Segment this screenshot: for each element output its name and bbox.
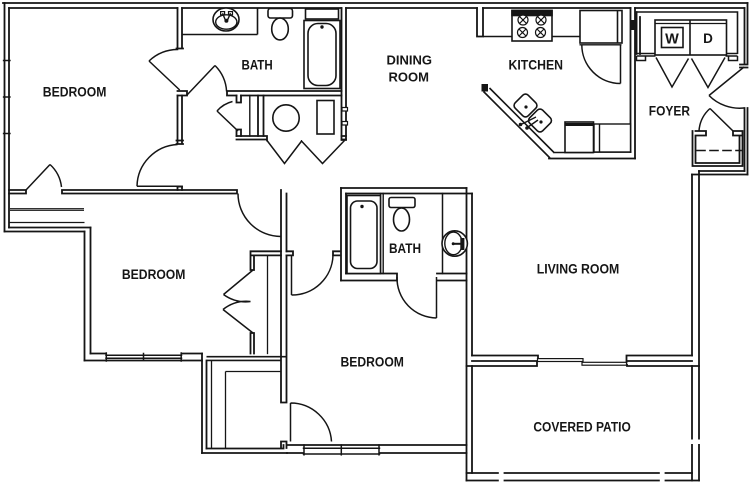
svg-text:BEDROOM: BEDROOM: [122, 267, 185, 283]
svg-text:LIVING ROOM: LIVING ROOM: [537, 261, 620, 277]
svg-text:FOYER: FOYER: [649, 102, 690, 118]
svg-text:W: W: [665, 31, 679, 47]
svg-text:BEDROOM: BEDROOM: [341, 354, 404, 370]
svg-text:BATH: BATH: [389, 241, 421, 256]
svg-text:COVERED PATIO: COVERED PATIO: [533, 420, 630, 436]
svg-text:BEDROOM: BEDROOM: [43, 84, 107, 100]
svg-text:ROOM: ROOM: [389, 70, 430, 85]
svg-text:BATH: BATH: [242, 57, 273, 72]
svg-text:D: D: [703, 31, 713, 46]
svg-text:DINING: DINING: [387, 52, 433, 67]
svg-text:KITCHEN: KITCHEN: [509, 57, 564, 72]
